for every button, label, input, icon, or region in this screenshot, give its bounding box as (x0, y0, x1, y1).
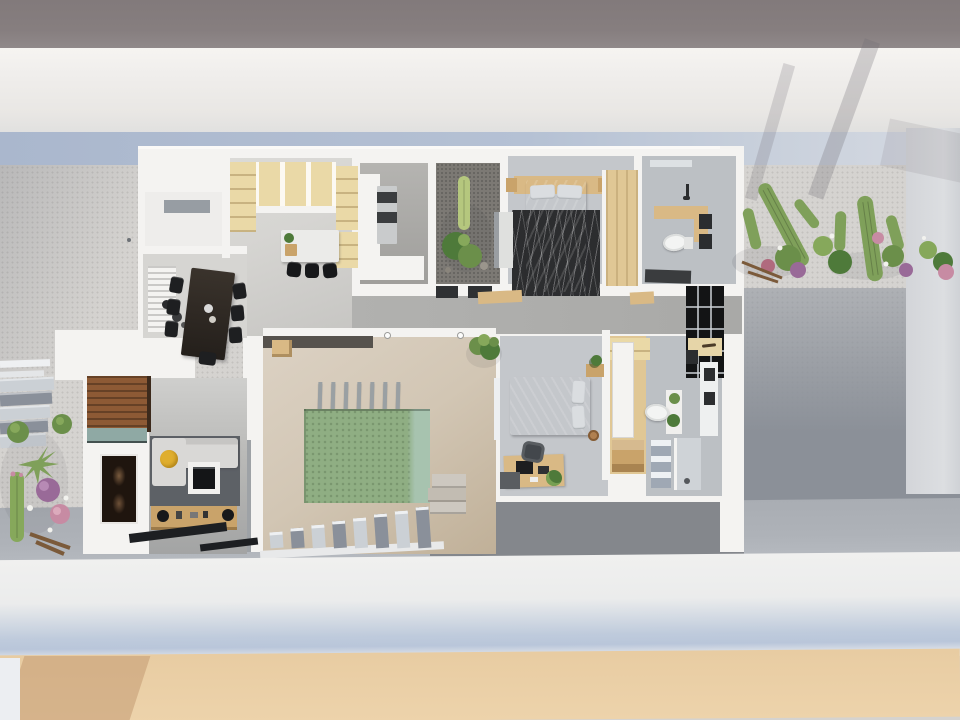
papers (530, 477, 538, 482)
interior-wall (602, 330, 610, 480)
door-threshold (436, 286, 458, 298)
sand-shadow (4, 656, 151, 720)
plant-icon (669, 393, 680, 404)
planter-block (432, 474, 466, 488)
kitchen-counter-edge (254, 206, 336, 213)
courtyard-step (269, 532, 283, 549)
tv-screen (193, 467, 215, 489)
courtyard-step (416, 507, 432, 549)
planter-block (428, 488, 466, 502)
pillow (530, 184, 556, 199)
decor-object (176, 511, 182, 519)
wall-pillar (0, 658, 20, 720)
floorplan-render (0, 0, 960, 720)
pergola-post (383, 382, 388, 412)
dining-chair (164, 320, 178, 337)
office-chair (520, 440, 545, 464)
bedroom1-wardrobe (602, 170, 638, 286)
front-boundary-wall (0, 48, 960, 134)
dining-chair (230, 304, 244, 321)
mirror (699, 214, 712, 229)
wood-slat-feature-wall (87, 376, 151, 432)
planter-block (430, 502, 466, 514)
dining-chair (166, 298, 181, 315)
mirror (686, 350, 698, 364)
courtyard-step (374, 514, 389, 549)
closet-drawers (612, 440, 644, 472)
interior-wall (222, 158, 230, 258)
sink (704, 392, 715, 405)
pergola-post (396, 382, 401, 412)
bathroom-window (650, 160, 692, 167)
courtyard-step (290, 528, 304, 549)
pergola-post (331, 382, 336, 412)
window-sill (494, 378, 500, 440)
washer-door-icon (377, 192, 397, 203)
dining-chair (169, 276, 185, 294)
round-stool (588, 430, 599, 441)
teal-shelf (87, 428, 147, 443)
bar-stool (305, 263, 319, 278)
pergola-post (318, 382, 323, 412)
kitchen-wall-cabinets (254, 162, 336, 208)
rear-boundary-wall (0, 552, 960, 664)
dining-chair (198, 351, 216, 366)
sink (704, 368, 715, 381)
street-road (0, 0, 960, 50)
wood-stool (272, 340, 292, 357)
dining-chair (232, 282, 247, 300)
table-centerpiece (204, 304, 213, 313)
pergola-post (357, 382, 362, 412)
courtyard-step (311, 525, 326, 549)
doormat (478, 290, 523, 304)
pillow (571, 381, 586, 405)
shower-drain-icon (684, 478, 690, 484)
wall-hook-icon (385, 333, 390, 338)
decor-object (190, 512, 198, 518)
storage-box (500, 472, 520, 489)
pantry-shelves (336, 166, 358, 230)
plant-icon (591, 355, 602, 366)
towel-stack (651, 440, 671, 488)
dining-chair (228, 327, 242, 344)
pillow (571, 406, 586, 430)
yellow-cushion (160, 450, 178, 468)
stacked-washer-dryer (377, 186, 397, 244)
plant-icon (667, 414, 680, 427)
decor-bowl (222, 509, 234, 521)
courtyard-step (332, 521, 347, 549)
desert-garden (728, 166, 960, 298)
toilet-tank (684, 237, 693, 249)
herb-plant-icon (284, 233, 294, 243)
doormat (630, 291, 655, 304)
bar-stool (322, 262, 337, 278)
table-centerpiece (209, 316, 216, 323)
shower-head-icon (683, 196, 690, 200)
dryer-door-icon (377, 212, 397, 223)
bath-mat (645, 269, 691, 284)
pergola-post (370, 382, 375, 412)
pantry-shelves (336, 232, 358, 268)
nightstand (506, 178, 517, 192)
decor-object (203, 511, 208, 518)
interior-wall (143, 246, 247, 254)
pillow (557, 184, 583, 199)
yard-drain-icon (127, 238, 131, 242)
courtyard-potted-plant (464, 330, 504, 372)
bar-stool (286, 261, 301, 277)
left-succulent-garden (0, 412, 82, 562)
framed-artwork (100, 454, 138, 524)
pergola-post (344, 382, 349, 412)
cutting-board (285, 244, 297, 256)
plunge-pool (304, 409, 430, 503)
wall-hook-icon (458, 333, 463, 338)
closet-panels (612, 342, 634, 438)
laundry-counter (360, 256, 424, 280)
decor-bowl (157, 510, 169, 522)
lightwell-cactus-garden (436, 168, 500, 284)
kitchen-tall-cabinet (230, 162, 256, 232)
skylight (164, 200, 210, 213)
courtyard-step (353, 518, 368, 549)
interior-wall (428, 160, 436, 288)
courtyard-step (395, 511, 411, 549)
mirror (699, 234, 712, 249)
desk-plant-icon (546, 470, 562, 486)
